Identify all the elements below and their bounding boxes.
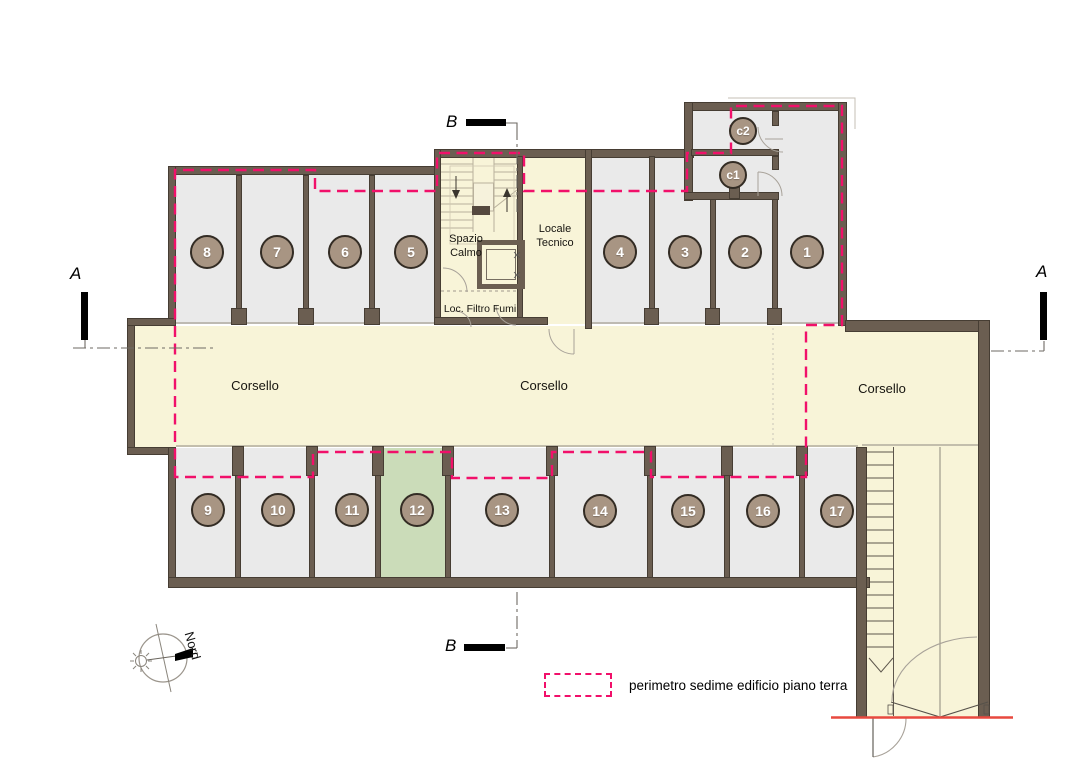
pillar <box>644 446 656 476</box>
pillar <box>442 446 454 476</box>
wall <box>168 166 440 175</box>
room-label-loc-filtro-fumi: Loc. Filtro Fumi <box>436 303 524 316</box>
wall <box>434 317 548 325</box>
wall <box>168 447 176 588</box>
elevator-car <box>486 249 516 280</box>
wall <box>856 447 867 718</box>
corridor-label-left: Corsello <box>205 378 305 394</box>
corridor-label-center: Corsello <box>494 378 594 394</box>
unit-badge-5: 5 <box>394 235 428 269</box>
room-label-locale-tecnico: Locale Tecnico <box>528 223 582 251</box>
pillar <box>644 308 659 325</box>
unit-badge-1: 1 <box>790 235 824 269</box>
compass-north-label: Nord <box>182 630 204 661</box>
wall <box>684 102 846 111</box>
unit-badge-3: 3 <box>668 235 702 269</box>
unit-badge-13: 13 <box>485 493 519 527</box>
wall <box>585 149 592 329</box>
unit-badge-11: 11 <box>335 493 369 527</box>
sun-icon <box>130 650 152 672</box>
section-bar-b-top <box>466 119 506 126</box>
unit-badge-c2: c2 <box>729 117 757 145</box>
wall <box>845 320 984 332</box>
pillar <box>796 446 808 476</box>
unit-badge-15: 15 <box>671 494 705 528</box>
unit-badge-8: 8 <box>190 235 224 269</box>
wall-partition <box>303 175 309 309</box>
wall <box>772 111 779 126</box>
unit-badge-10: 10 <box>261 493 295 527</box>
wall <box>168 577 870 588</box>
pillar <box>372 446 384 476</box>
unit-badge-2: 2 <box>728 235 762 269</box>
unit-badge-7: 7 <box>260 235 294 269</box>
pillar <box>232 446 244 476</box>
wall <box>127 318 176 326</box>
wall <box>127 318 135 455</box>
wall-partition <box>236 175 242 309</box>
ramp-yard-fill <box>866 445 982 718</box>
section-marker-a-left: A <box>70 264 81 284</box>
wall-partition <box>649 156 655 316</box>
legend-label: perimetro sedime edificio piano terra <box>629 678 847 693</box>
wall-partition <box>772 199 778 316</box>
wall-partition <box>710 199 716 316</box>
pillar <box>546 446 558 476</box>
wall <box>978 320 990 718</box>
pillar <box>306 446 318 476</box>
section-marker-b-top: B <box>446 112 457 132</box>
wall <box>434 149 441 325</box>
pillar <box>364 308 380 325</box>
wall <box>691 149 779 156</box>
unit-badge-12: 12 <box>400 493 434 527</box>
pillar <box>231 308 247 325</box>
floor-plan: Corsello Corsello Corsello Spazio Calmo … <box>0 0 1076 780</box>
wall-partition <box>369 175 375 309</box>
room-label-spazio-calmo: Spazio Calmo <box>442 233 490 261</box>
unit-badge-6: 6 <box>328 235 362 269</box>
wall <box>434 149 694 158</box>
section-bar-b-bottom <box>464 644 505 651</box>
unit-badge-16: 16 <box>746 494 780 528</box>
wall <box>772 156 779 170</box>
wall <box>838 102 847 326</box>
unit-badge-c1: c1 <box>719 161 747 189</box>
unit-badge-9: 9 <box>191 493 225 527</box>
section-marker-a-right: A <box>1036 262 1047 282</box>
unit-badge-4: 4 <box>603 235 637 269</box>
pillar <box>721 446 733 476</box>
section-bar-a-left <box>81 292 88 340</box>
section-marker-b-bottom: B <box>445 636 456 656</box>
unit-badge-17: 17 <box>820 494 854 528</box>
stair-landing-step <box>472 206 490 215</box>
corridor-label-right: Corsello <box>832 381 932 397</box>
wall <box>168 166 176 326</box>
pillar <box>767 308 782 325</box>
pillar <box>298 308 314 325</box>
unit-badge-14: 14 <box>583 494 617 528</box>
legend-perimeter-swatch <box>544 673 612 697</box>
section-bar-a-right <box>1040 292 1047 340</box>
pillar <box>705 308 720 325</box>
